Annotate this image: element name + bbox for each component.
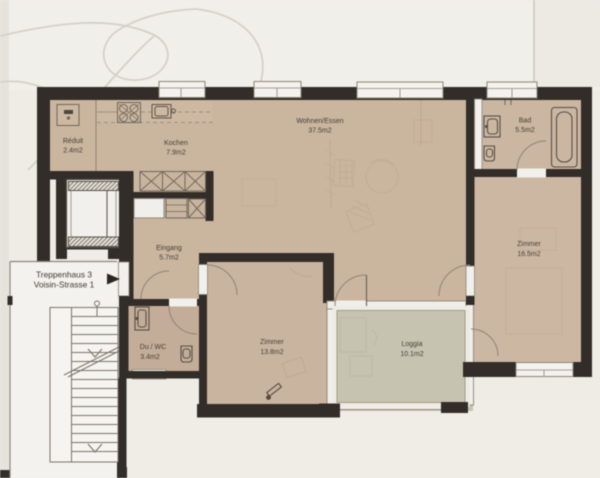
svg-text:Voisin-Strasse 1: Voisin-Strasse 1 (34, 280, 95, 290)
svg-text:Kochen: Kochen (164, 140, 188, 147)
svg-text:16.5m2: 16.5m2 (517, 251, 540, 258)
svg-text:Du / WC: Du / WC (140, 344, 166, 351)
svg-text:2.4m2: 2.4m2 (63, 148, 83, 155)
svg-text:13.8m2: 13.8m2 (260, 349, 283, 356)
svg-text:5.5m2: 5.5m2 (515, 127, 535, 134)
svg-text:Wohnen/Essen: Wohnen/Essen (296, 118, 343, 125)
svg-text:Bad: Bad (519, 118, 532, 125)
svg-text:Réduit: Réduit (63, 138, 83, 145)
svg-text:Treppenhaus 3: Treppenhaus 3 (36, 270, 92, 280)
svg-text:7.9m2: 7.9m2 (166, 150, 186, 157)
svg-text:Zimmer: Zimmer (517, 241, 541, 248)
svg-text:10.1m2: 10.1m2 (400, 351, 423, 358)
svg-text:Zimmer: Zimmer (260, 339, 284, 346)
svg-text:5.7m2: 5.7m2 (159, 255, 179, 262)
svg-text:Loggia: Loggia (401, 341, 422, 348)
svg-text:3.4m2: 3.4m2 (140, 354, 160, 361)
svg-text:37.5m2: 37.5m2 (308, 128, 331, 135)
svg-text:Eingang: Eingang (156, 245, 182, 252)
